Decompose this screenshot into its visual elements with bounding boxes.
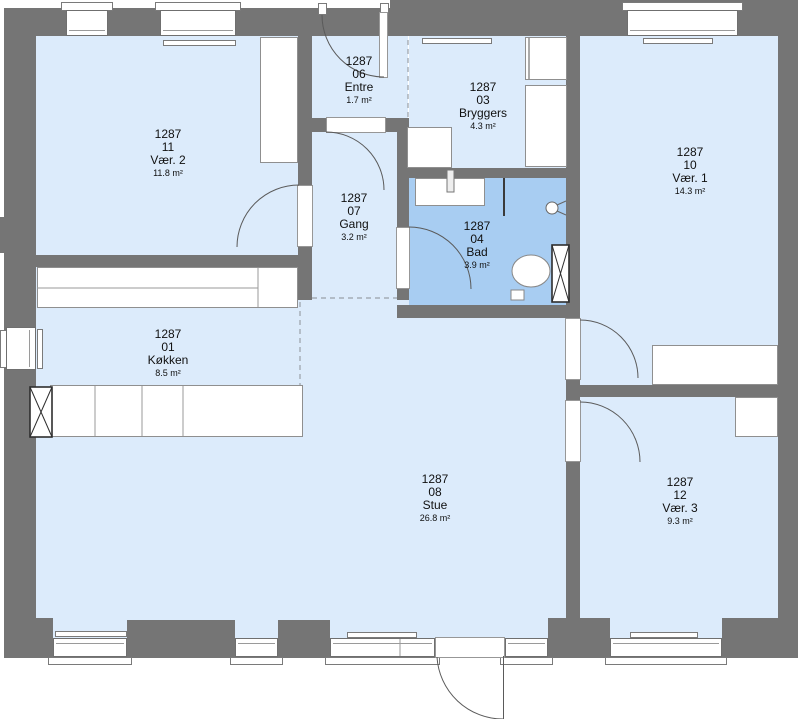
room-area: 3.9 m² — [464, 259, 491, 271]
room-label-stue: 1287 08 Stue 26.8 m² — [420, 473, 451, 524]
kitchen-counter-icon — [37, 267, 298, 308]
room-label-gang: 1287 07 Gang 3.2 m² — [339, 192, 368, 243]
wall-vaer2-right — [298, 36, 312, 300]
room-vaer1-floor — [580, 36, 778, 385]
room-area: 14.3 m² — [672, 185, 707, 197]
wall-entre-bottom-left — [298, 118, 328, 132]
room-label-bryggers: 1287 03 Bryggers 4.3 m² — [459, 81, 507, 132]
wall-corner-bottom-left — [4, 618, 53, 658]
radiator-icon — [55, 631, 127, 637]
room-name: Bryggers — [459, 107, 507, 120]
kitchen-counter-icon — [50, 385, 303, 437]
door-opening-vaer3 — [565, 400, 581, 462]
window-icon — [235, 638, 278, 657]
sink-icon — [415, 178, 485, 206]
wall-stue-vertical-b — [566, 462, 580, 640]
room-koekken-stue-floor — [36, 267, 566, 640]
washer-icon — [525, 37, 567, 80]
window-icon — [6, 327, 36, 370]
tall-cabinet-icon — [525, 85, 567, 167]
room-area: 1.7 m² — [345, 94, 374, 106]
window-icon — [505, 638, 548, 657]
room-area: 8.5 m² — [148, 367, 189, 379]
window-icon — [627, 10, 738, 36]
window-icon — [330, 638, 435, 657]
wall-bottom-block-1 — [127, 620, 235, 658]
room-name: Bad — [464, 246, 491, 259]
wardrobe-icon — [260, 37, 298, 163]
door-post — [318, 3, 327, 15]
room-area: 3.2 m² — [339, 231, 368, 243]
window-icon — [610, 638, 722, 657]
radiator-icon — [630, 632, 698, 638]
room-area: 4.3 m² — [459, 120, 507, 132]
room-name: Entre — [345, 81, 374, 94]
wall-right — [778, 0, 798, 658]
room-label-bad: 1287 04 Bad 3.9 m² — [464, 220, 491, 271]
door-opening-bad — [396, 227, 410, 289]
wardrobe-icon — [735, 397, 778, 437]
radiator-icon — [347, 632, 417, 638]
window-sill — [230, 657, 283, 665]
room-label-vaer-1: 1287 10 Vær. 1 14.3 m² — [672, 146, 707, 197]
wall-footing — [548, 618, 610, 658]
door-opening-vaer1 — [565, 318, 581, 380]
door-opening-gang — [326, 117, 386, 133]
radiator-icon — [163, 40, 236, 46]
wardrobe-icon — [652, 345, 778, 385]
room-label-vaer-2: 1287 11 Vær. 2 11.8 m² — [150, 128, 185, 179]
wall-bad-bottom — [397, 305, 580, 318]
wall-pilaster-left — [0, 217, 10, 253]
window-icon — [53, 638, 127, 657]
wall-vaer2-bottom — [4, 255, 312, 267]
room-name: Vær. 1 — [672, 172, 707, 185]
radiator-icon — [643, 38, 713, 44]
wall-mid-vertical — [566, 0, 580, 318]
window-sill — [48, 657, 132, 665]
room-area: 11.8 m² — [150, 167, 185, 179]
wall-corner-bottom-right — [722, 618, 798, 658]
room-name: Køkken — [148, 354, 189, 367]
wall-bad-top — [397, 168, 580, 178]
room-area: 9.3 m² — [662, 515, 697, 527]
floor-plan: 1287 11 Vær. 2 11.8 m² 1287 06 Entre 1.7… — [0, 0, 800, 719]
wall-bottom-block-2 — [278, 620, 330, 658]
window-sill — [325, 657, 440, 665]
window-icon — [160, 10, 236, 36]
room-label-koekken: 1287 01 Køkken 8.5 m² — [148, 328, 189, 379]
bryggers-cabinet-icon — [407, 127, 452, 168]
window-sill — [500, 657, 553, 665]
room-name: Vær. 3 — [662, 502, 697, 515]
radiator-icon — [37, 329, 43, 369]
window-sill — [605, 657, 727, 665]
room-name: Vær. 2 — [150, 154, 185, 167]
radiator-icon — [422, 38, 492, 44]
room-label-entre: 1287 06 Entre 1.7 m² — [345, 55, 374, 106]
room-area: 26.8 m² — [420, 512, 451, 524]
door-opening-stue — [435, 637, 505, 658]
wall-vaer1-vaer3 — [566, 385, 798, 397]
room-name: Stue — [420, 499, 451, 512]
window-icon — [66, 10, 108, 36]
entrance-door-leaf — [379, 12, 388, 78]
room-name: Gang — [339, 218, 368, 231]
door-opening-vaer2 — [297, 185, 313, 247]
room-label-vaer-3: 1287 12 Vær. 3 9.3 m² — [662, 476, 697, 527]
